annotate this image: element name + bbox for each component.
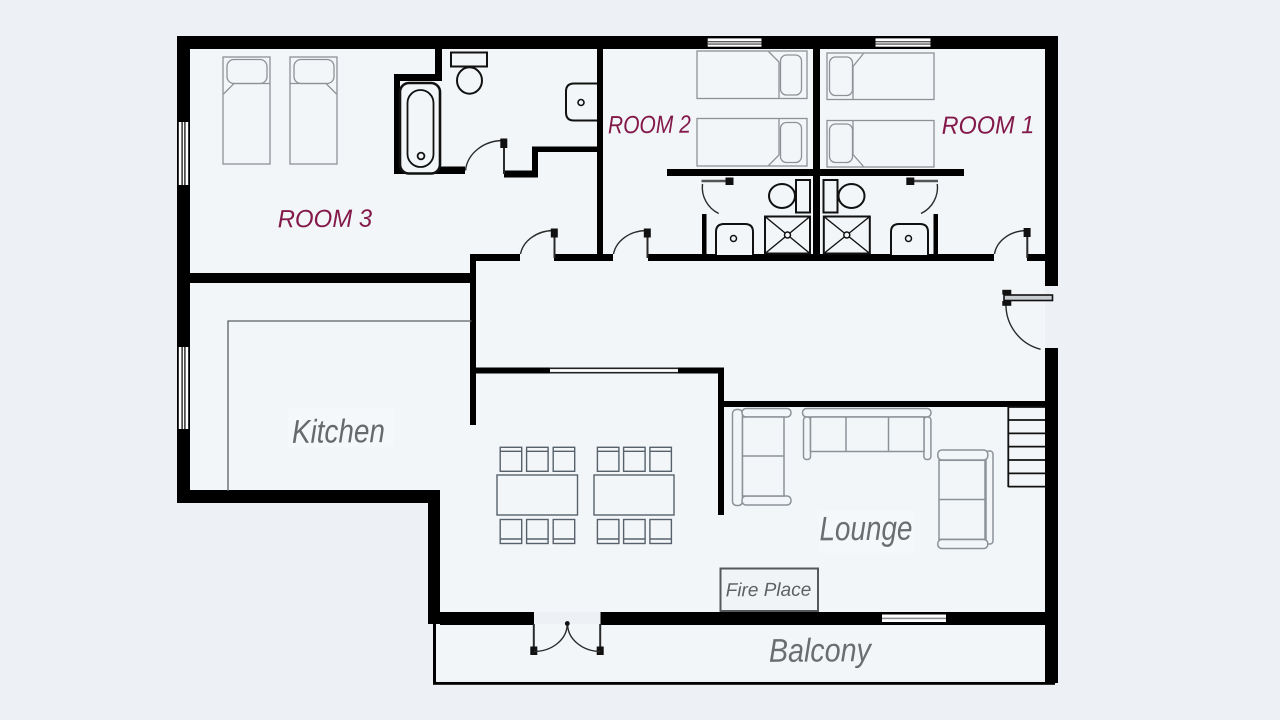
svg-text:Balcony: Balcony — [769, 631, 873, 669]
svg-text:Fire Place: Fire Place — [726, 580, 812, 602]
svg-text:Kitchen: Kitchen — [292, 412, 385, 450]
svg-text:ROOM 2: ROOM 2 — [608, 111, 691, 140]
svg-text:ROOM 1: ROOM 1 — [942, 111, 1035, 140]
svg-text:ROOM 3: ROOM 3 — [278, 205, 373, 234]
svg-text:Lounge: Lounge — [819, 510, 912, 549]
